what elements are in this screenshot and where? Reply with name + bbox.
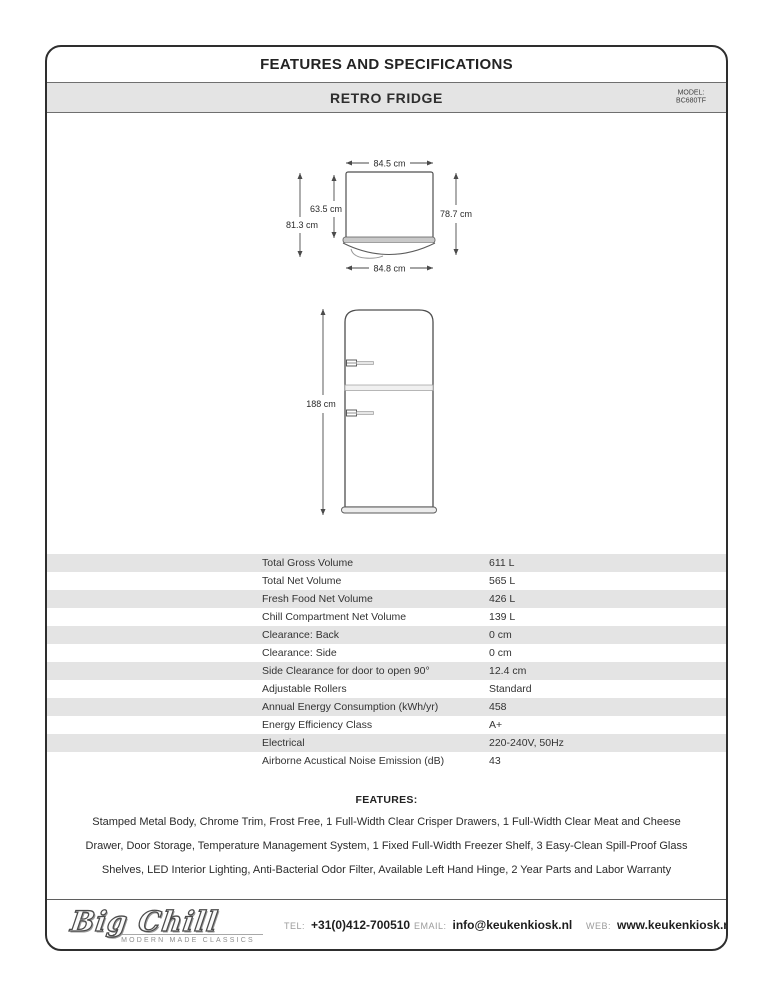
features-section: FEATURES: Stamped Metal Body, Chrome Tri… — [47, 794, 726, 882]
tel-label: TEL: — [284, 921, 305, 931]
spec-row: Side Clearance for door to open 90°12.4 … — [47, 662, 726, 680]
plan-dim-depth-body: 63.5 cm — [310, 204, 342, 214]
spec-row: Adjustable RollersStandard — [47, 680, 726, 698]
spec-label: Clearance: Side — [262, 647, 489, 659]
spec-value: 12.4 cm — [489, 665, 526, 677]
model-label: MODEL: — [676, 89, 706, 98]
spec-value: 565 L — [489, 575, 515, 587]
spec-row: Total Gross Volume611 L — [47, 554, 726, 572]
model-value: BC680TF — [676, 98, 706, 107]
spec-sheet-page: FEATURES AND SPECIFICATIONS RETRO FRIDGE… — [45, 45, 728, 951]
spec-label: Total Gross Volume — [262, 557, 489, 569]
email-value: info@keukenkiosk.nl — [453, 918, 573, 932]
spec-row: Electrical220-240V, 50Hz — [47, 734, 726, 752]
spec-value: 426 L — [489, 593, 515, 605]
web-value: www.keukenkiosk.nl — [617, 918, 728, 932]
spec-label: Chill Compartment Net Volume — [262, 611, 489, 623]
page-title: FEATURES AND SPECIFICATIONS — [260, 56, 513, 73]
plan-cabinet-body — [346, 172, 433, 240]
spec-label: Electrical — [262, 737, 489, 749]
spec-row: Energy Efficiency ClassA+ — [47, 716, 726, 734]
spec-row: Annual Energy Consumption (kWh/yr)458 — [47, 698, 726, 716]
plan-door-band — [343, 237, 435, 243]
plan-dim-width-top: 84.5 cm — [373, 159, 405, 169]
spec-label: Side Clearance for door to open 90° — [262, 665, 489, 677]
spec-value: 0 cm — [489, 647, 512, 659]
features-text: Stamped Metal Body, Chrome Trim, Frost F… — [81, 810, 693, 882]
brand-logo: Big Chill MODERN MADE CLASSICS — [71, 905, 271, 944]
spec-label: Clearance: Back — [262, 629, 489, 641]
web-label: WEB: — [586, 921, 611, 931]
spec-label: Annual Energy Consumption (kWh/yr) — [262, 701, 489, 713]
spec-label: Fresh Food Net Volume — [262, 593, 489, 605]
fridge-plan-drawing: 84.5 cm 81.3 cm 63.5 cm 78.7 cm 84.8 cm — [281, 155, 491, 287]
spec-value: 43 — [489, 755, 501, 767]
contact-email: EMAIL: info@keukenkiosk.nl — [414, 918, 572, 932]
plan-dim-width-bottom: 84.8 cm — [373, 264, 405, 274]
tel-value: +31(0)412-700510 — [311, 918, 410, 932]
spec-value: 139 L — [489, 611, 515, 623]
spec-label: Airborne Acustical Noise Emission (dB) — [262, 755, 489, 767]
plan-door-curve — [343, 243, 435, 255]
specs-table: Total Gross Volume611 LTotal Net Volume5… — [47, 554, 726, 770]
model-block: MODEL: BC680TF — [676, 89, 706, 106]
spec-label: Total Net Volume — [262, 575, 489, 587]
brand-logo-script: Big Chill — [69, 905, 221, 938]
spec-row: Total Net Volume565 L — [47, 572, 726, 590]
features-heading: FEATURES: — [47, 794, 726, 806]
plan-dim-depth-total: 81.3 cm — [286, 220, 318, 230]
spec-value: 0 cm — [489, 629, 512, 641]
spec-value: 458 — [489, 701, 507, 713]
front-dim-height: 188 cm — [306, 399, 336, 409]
fridge-front-drawing: 188 cm — [281, 297, 491, 525]
spec-label: Energy Efficiency Class — [262, 719, 489, 731]
footer: Big Chill MODERN MADE CLASSICS TEL: +31(… — [47, 899, 726, 949]
product-bar: RETRO FRIDGE MODEL: BC680TF — [47, 82, 726, 113]
spec-row: Fresh Food Net Volume426 L — [47, 590, 726, 608]
product-name: RETRO FRIDGE — [330, 90, 443, 106]
spec-value: A+ — [489, 719, 502, 731]
spec-value: Standard — [489, 683, 532, 695]
email-label: EMAIL: — [414, 921, 447, 931]
plan-dim-depth-right: 78.7 cm — [440, 209, 472, 219]
front-base-plate — [342, 507, 437, 513]
spec-label: Adjustable Rollers — [262, 683, 489, 695]
spec-value: 220-240V, 50Hz — [489, 737, 564, 749]
title-bar: FEATURES AND SPECIFICATIONS — [47, 47, 726, 82]
contact-web: WEB: www.keukenkiosk.nl — [586, 918, 728, 932]
front-fridge-body — [345, 310, 433, 507]
front-door-split-trim — [345, 385, 433, 391]
contact-tel: TEL: +31(0)412-700510 — [284, 918, 410, 932]
spec-row: Airborne Acustical Noise Emission (dB)43 — [47, 752, 726, 770]
spec-value: 611 L — [489, 557, 515, 569]
spec-row: Clearance: Side0 cm — [47, 644, 726, 662]
spec-row: Chill Compartment Net Volume139 L — [47, 608, 726, 626]
spec-row: Clearance: Back0 cm — [47, 626, 726, 644]
